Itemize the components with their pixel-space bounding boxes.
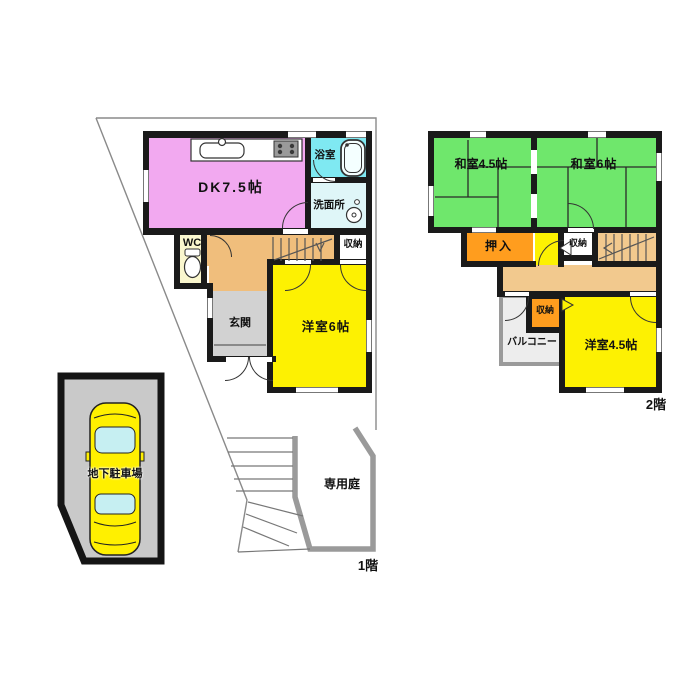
label-balcony: バルコニー [500, 337, 564, 348]
label-dk: DK7.5帖 [170, 180, 292, 195]
wall [428, 131, 662, 138]
door-opening [340, 260, 366, 264]
wall [592, 261, 662, 267]
wall [143, 228, 372, 235]
window [656, 153, 662, 181]
label-storage-2f-upper: 収納 [564, 239, 592, 249]
stairs-2f-area [596, 231, 656, 263]
window [586, 387, 624, 393]
hall-lower [209, 264, 271, 294]
wall [526, 327, 565, 333]
window [346, 131, 366, 138]
label-wc: WC [179, 237, 205, 249]
sliding-door [531, 150, 537, 174]
label-storage-1f: 収納 [338, 240, 368, 250]
sliding-door [531, 194, 537, 218]
door-opening [505, 292, 529, 296]
label-entrance: 玄関 [212, 317, 268, 329]
wall [143, 131, 372, 138]
door-opening [285, 260, 311, 264]
window [207, 298, 213, 318]
corridor-2f [501, 265, 656, 293]
entrance-step-line [214, 344, 266, 346]
window [428, 186, 434, 216]
label-floor1: 1階 [346, 559, 390, 573]
sliding-door [472, 227, 496, 233]
label-garden: 専用庭 [310, 478, 374, 491]
door-arc-entrance-right [249, 357, 273, 381]
window [470, 131, 486, 138]
label-bath: 浴室 [305, 150, 345, 162]
window [588, 131, 606, 138]
door-opening [283, 229, 308, 234]
label-washroom: 洗面所 [303, 200, 355, 212]
label-storage-2f-lower: 収納 [531, 306, 559, 316]
door-opening [630, 292, 656, 296]
window [143, 170, 149, 202]
label-western45: 洋室4.5帖 [565, 339, 657, 352]
window [288, 131, 316, 138]
label-japanese45: 和室4.5帖 [434, 158, 528, 171]
label-garage: 地下駐車場 [83, 468, 147, 480]
label-oshiire: 押入 [471, 240, 527, 253]
label-western6: 洋室6帖 [276, 321, 376, 335]
label-japanese6: 和室6帖 [548, 158, 640, 171]
wall [428, 131, 434, 233]
floorplan-canvas: DK7.5帖 浴室 洗面所 WC 玄関 洋室6帖 収納 専用庭 1階 地下駐車場… [0, 0, 700, 693]
room-japanese45 [434, 138, 534, 230]
window [296, 387, 338, 393]
room-japanese6 [534, 138, 656, 230]
label-floor2: 2階 [634, 398, 678, 412]
outdoor-stairs [227, 438, 310, 552]
door-arc-entrance-left [225, 357, 249, 381]
